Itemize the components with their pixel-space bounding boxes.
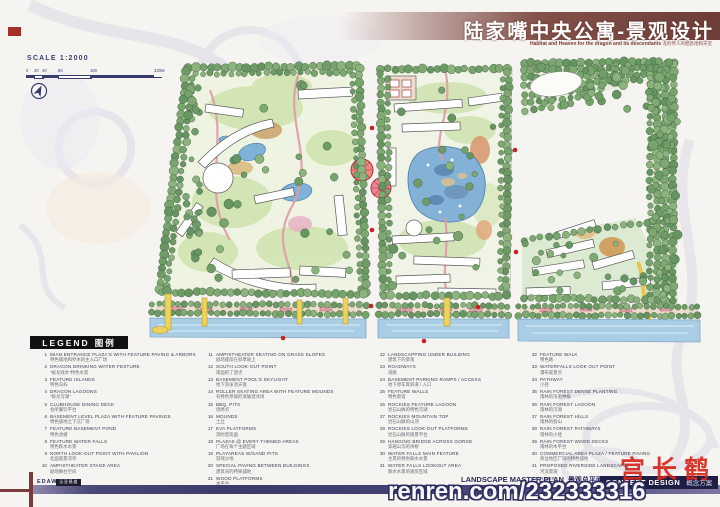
legend-item: 25FEATURE WALLS特色景墙	[372, 389, 524, 400]
legend-item: 3FEATURE ISLANDS特色岛屿	[34, 377, 196, 388]
legend-item: 30WATER FALLS MAIN FEATURE主景的特色跌水水景	[372, 451, 524, 462]
legend-item-label-cn: 特色池塘	[50, 432, 196, 438]
legend-item-number: 39	[524, 439, 537, 450]
legend-item-number: 15	[200, 402, 213, 413]
legend-item-number: 2	[34, 364, 47, 375]
legend-item-label-cn: 北面观景凉亭	[50, 456, 196, 462]
scale-tick-label: 320M	[154, 68, 164, 73]
legend-item: 31WATER FALLS LOOKOUT AREA跌水水景的观赏区域	[372, 463, 524, 474]
legend-item-label-cn: 雨林的浓密种植	[540, 394, 674, 400]
legend-item-number: 16	[200, 414, 213, 425]
legend-item-number: 28	[372, 426, 385, 437]
legend-item: 26ROCKIES FEATURE LAGOON岩石山脉的特色泻湖	[372, 402, 524, 413]
legend-item: 38RAIN FOREST PATHWAYS雨林的小径	[524, 426, 674, 437]
legend-item-label-cn: 建筑下的景观	[388, 357, 524, 363]
legend-item-label-cn: 小径	[540, 382, 674, 388]
north-arrow-icon	[30, 82, 48, 100]
subtitle-en: Habitat and Heaven for the dragon and it…	[530, 41, 661, 47]
legend-item-label-cn: 建筑间的特殊铺地	[216, 469, 368, 475]
legend-item-number: 19	[200, 451, 213, 462]
legend-item-number: 14	[200, 389, 213, 400]
legend-item-label-cn: "蛟龙戏水"特色水景	[50, 370, 196, 376]
legend-item: 24BASEMENT PARKING RAMPS / ACCESS地下停车库斜道…	[372, 377, 524, 388]
legend-item-label-cn: 土丘	[216, 419, 368, 425]
legend-item-label-cn: 南面的了望点	[216, 370, 368, 376]
legend-item-number: 27	[372, 414, 385, 425]
legend-item: 16MOUNDS土丘	[200, 414, 368, 425]
legend-item-number: 26	[372, 402, 385, 413]
legend-item-number: 11	[200, 352, 213, 363]
legend-item: 6BASEMENT LEVEL PLAZA WITH FEATURE PAVIN…	[34, 414, 196, 425]
legend-item-number: 23	[372, 364, 385, 375]
legend-item: 35RAIN FOREST DENSE PLANTING雨林的浓密种植	[524, 389, 674, 400]
legend-item: 20SPECIAL PAVING BETWEEN BUILDINGS建筑间的特殊…	[200, 463, 368, 474]
legend-item-label-cn: 岩石山脉的山顶	[388, 419, 524, 425]
legend-item-label-cn: 特色铺地之下沉广场	[50, 419, 196, 425]
legend-item: 36RAIN FOREST LAGOON雨林的泻湖	[524, 402, 674, 413]
legend-item: 15BBQ. PITS烧烤点	[200, 402, 368, 413]
legend-item: 7FEATURE BASEMENT POND特色池塘	[34, 426, 196, 437]
legend-item: 18PLAZAS @ EVERY THEMED AREAS广场在每个主题区域	[200, 439, 368, 450]
legend-item-label-cn: 穿越山沟的吊桥	[388, 444, 524, 450]
legend-item-number: 33	[524, 364, 537, 375]
page-subtitle: Habitat and Heaven for the dragon and it…	[530, 41, 712, 47]
legend-item-label-cn: 会所餐饮平台	[50, 407, 196, 413]
legend-item-label-cn: 消防登高面	[216, 432, 368, 438]
scale-tick-label: 80	[58, 68, 63, 73]
page-title: 陆家嘴中央公寓-景观设计	[463, 15, 714, 44]
legend-item: 11AMPHITHEATER SEATING ON GRASS SLOPES剧场…	[200, 352, 368, 363]
legend-item-label-cn: 游戏沙地	[216, 456, 368, 462]
legend-item: 8FEATURE WATER FALLS特色跌水水景	[34, 439, 196, 450]
legend-item: 19PLAYAREAS W/SAND PITS游戏沙地	[200, 451, 368, 462]
legend-item: 29HANGING BRIDGE ACROSS GORGE穿越山沟的吊桥	[372, 439, 524, 450]
watermark: renren.com/232333316	[388, 478, 646, 506]
legend-item-number: 18	[200, 439, 213, 450]
legend-item-number: 29	[372, 439, 385, 450]
scale-label: SCALE 1:2000	[27, 55, 89, 62]
scale-tick-label: 40	[42, 68, 47, 73]
legend-item-number: 25	[372, 389, 385, 400]
legend-item-label-cn: 道路	[388, 370, 524, 376]
legend-item: 22LANDSCAPPING UNDER BUILDING建筑下的景观	[372, 352, 524, 363]
legend-item-label-cn: 主景的特色跌水水景	[388, 456, 524, 462]
legend-title-cn: 图例	[95, 337, 116, 349]
legend-item-label-cn: 特色跌水水景	[50, 444, 196, 450]
scale-tick-label: 0	[26, 68, 28, 73]
legend-item-label-cn: 雨林的泻湖	[540, 407, 674, 413]
legend-item-number: 38	[524, 426, 537, 437]
legend-item-label-cn: 特色岛屿	[50, 382, 196, 388]
legend-column-1: 1MIAN ENTRANCE PLAZA'S WITH FEATURE PAVI…	[34, 352, 196, 476]
legend-title: LEGEND 图例	[30, 336, 128, 349]
legend-item: 2DRAGON DRINKING WATER FESTURE"蛟龙戏水"特色水景	[34, 364, 196, 375]
legend-item-number: 36	[524, 402, 537, 413]
legend-item-number: 24	[372, 377, 385, 388]
legend-item-number: 7	[34, 426, 47, 437]
legend-item-label-cn: "蛟龙泻湖"	[50, 394, 196, 400]
legend-item-label-cn: 广场在每个主题区域	[216, 444, 368, 450]
legend-column-2: 11AMPHITHEATER SEATING ON GRASS SLOPES剧场…	[200, 352, 368, 488]
legend-item-number: 6	[34, 414, 47, 425]
legend-item-number: 41	[524, 463, 537, 474]
legend-item-number: 3	[34, 377, 47, 388]
legend-item: 37RAIN FOREST HILLS雨林的假山	[524, 414, 674, 425]
legend-item-label-cn: 地下游泳池天窗	[216, 382, 368, 388]
legend-item-label-cn: 特色路	[540, 357, 674, 363]
legend-item-label-cn: 雨林的假山	[540, 419, 674, 425]
legend-item-label-cn: 瀑布观景点	[540, 370, 674, 376]
legend-item: 1MIAN ENTRANCE PLAZA'S WITH FEATURE PAVI…	[34, 352, 196, 363]
corner-red-mark	[8, 27, 21, 36]
legend-item-number: 37	[524, 414, 537, 425]
presentation-board: 陆家嘴中央公寓-景观设计 Habitat and Heaven for the …	[0, 0, 720, 507]
legend-item-number: 22	[372, 352, 385, 363]
firm-logo-cn: 泛亚易道	[56, 479, 81, 487]
legend-item: 23ROADWAYS道路	[372, 364, 524, 375]
legend-item: 4DRAGON LAGOONS"蛟龙泻湖"	[34, 389, 196, 400]
legend-item-number: 32	[524, 352, 537, 363]
legend-item-label-cn: 剧场座席在斜草坡上	[216, 357, 368, 363]
legend-item-label-cn: 跌水水景的观赏区域	[388, 469, 524, 475]
legend-item-number: 35	[524, 389, 537, 400]
legend-item-number: 10	[34, 463, 47, 474]
legend-item-number: 12	[200, 364, 213, 375]
legend-item-number: 40	[524, 451, 537, 462]
legend-item: 10AMPHITHEATER STAGE AREA剧场舞台空间	[34, 463, 196, 474]
legend-item-label-cn: 烧烤点	[216, 407, 368, 413]
legend-item: 28ROCKIES LOOK-OUT PLATFORMS岩石山脉的观景平台	[372, 426, 524, 437]
legend-item-number: 13	[200, 377, 213, 388]
legend-item: 39RAIN FOREST WOOD DECKS雨林的木平台	[524, 439, 674, 450]
legend-title-en: LEGEND	[42, 338, 89, 348]
legend-item: 32FEATURE WALK特色路	[524, 352, 674, 363]
legend-item-label-cn: 有特色草坡的滚轴溜冰场	[216, 394, 368, 400]
legend-column-3: 22LANDSCAPPING UNDER BUILDING建筑下的景观23ROA…	[372, 352, 524, 476]
scale-bar: 0204080160320M	[26, 68, 176, 82]
legend-item-label-cn: 岩石山脉的观景平台	[388, 432, 524, 438]
footer-maroon-bar-horizontal	[0, 489, 29, 492]
legend-item-label-cn: 特色景墙	[388, 394, 524, 400]
legend-item-number: 8	[34, 439, 47, 450]
legend-item-number: 9	[34, 451, 47, 462]
firm-logo: EDAW	[37, 479, 58, 485]
river	[150, 318, 700, 342]
legend-item-number: 17	[200, 426, 213, 437]
legend-item-label-cn: 地下停车库斜道 / 入口	[388, 382, 524, 388]
legend-item: 34PATHWAY小径	[524, 377, 674, 388]
legend-item-label-cn: 特色铺地和乔木的主入口广场	[50, 357, 196, 363]
legend-item: 17EVA PLATFORMS消防登高面	[200, 426, 368, 437]
legend-item-number: 34	[524, 377, 537, 388]
legend-item: 13BASEMENT POOL'S SKYLIGHT地下游泳池天窗	[200, 377, 368, 388]
legend-item-label-cn: 雨林的小径	[540, 432, 674, 438]
legend-item: 14ROLLER SKATING AREA WITH FEATURE MOUND…	[200, 389, 368, 400]
subtitle-cn: 龙的传人的栖息地和天堂	[663, 41, 713, 46]
boat	[152, 327, 168, 334]
legend-item-label-cn: 剧场舞台空间	[50, 469, 196, 475]
legend-item-number: 30	[372, 451, 385, 462]
scale-tick-label: 160	[90, 68, 97, 73]
legend-item-number: 1	[34, 352, 47, 363]
legend-item: 12SOUTH LOOK-OUT POINT南面的了望点	[200, 364, 368, 375]
legend-item-label-cn: 岩石山脉的特色泻湖	[388, 407, 524, 413]
legend-item: 9NORTH LOOK-OUT POINT WITH PAVILION北面观景凉…	[34, 451, 196, 462]
legend-item-label-cn: 雨林的木平台	[540, 444, 674, 450]
legend-item: 33WATERFALLS LOOK OUT POINT瀑布观景点	[524, 364, 674, 375]
legend-item-number: 20	[200, 463, 213, 474]
legend-item-number: 31	[372, 463, 385, 474]
legend-item-number: 4	[34, 389, 47, 400]
scale-tick-label: 20	[34, 68, 39, 73]
legend-item-number: 5	[34, 402, 47, 413]
legend-item: 5CLUBHOUSE DINING DECK会所餐饮平台	[34, 402, 196, 413]
legend-item: 27ROCKIES MOUNTAIN TOP岩石山脉的山顶	[372, 414, 524, 425]
